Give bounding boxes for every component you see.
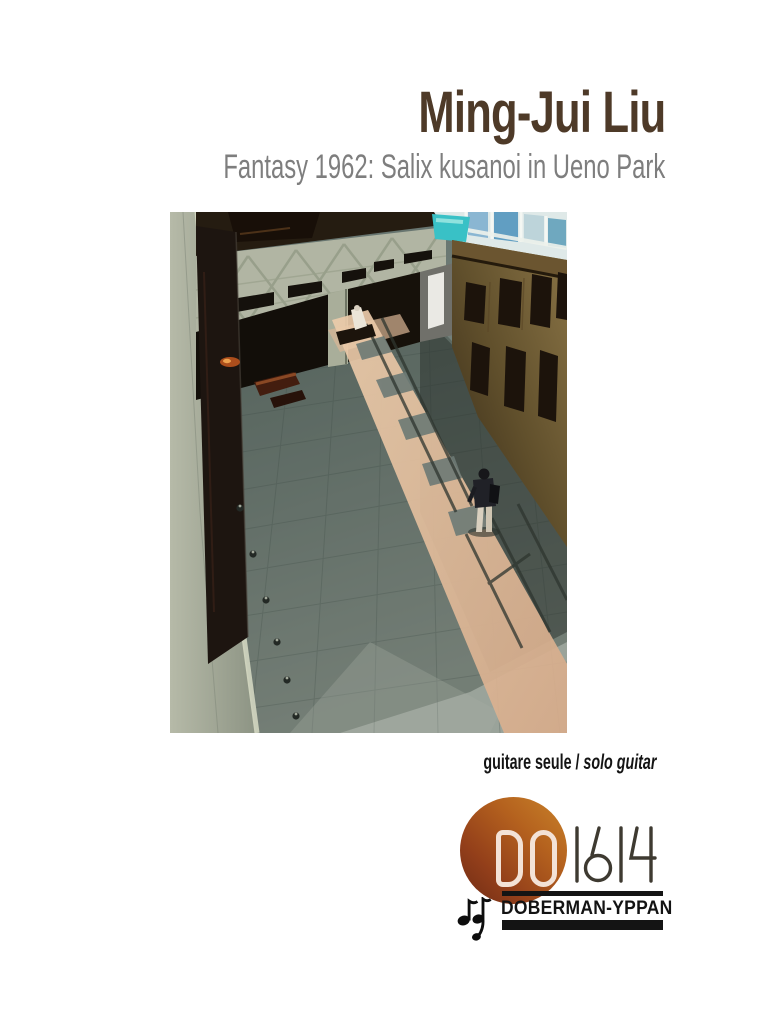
stencil-letter-o bbox=[530, 830, 557, 887]
instrumentation: guitare seule / solo guitar bbox=[483, 749, 656, 776]
catalog-number bbox=[573, 826, 661, 884]
instrumentation-french: guitare seule bbox=[483, 751, 571, 774]
composer-name: Ming-Jui Liu bbox=[418, 84, 665, 142]
logo-rule-top bbox=[502, 891, 663, 896]
instrumentation-english: solo guitar bbox=[583, 751, 656, 774]
publisher-name: DOBERMAN-YPPAN bbox=[501, 899, 673, 918]
work-title: Fantasy 1962: Salix kusanoi in Ueno Park bbox=[223, 150, 665, 184]
cover-photo bbox=[170, 212, 567, 733]
logo-rule-bottom bbox=[502, 920, 663, 930]
music-notes-icon bbox=[455, 897, 502, 944]
stencil-letter-d bbox=[496, 830, 523, 887]
score-cover-page: Ming-Jui Liu Fantasy 1962: Salix kusanoi… bbox=[0, 0, 768, 1024]
catalog-prefix: DO bbox=[496, 830, 557, 887]
instrumentation-separator: / bbox=[571, 751, 583, 774]
